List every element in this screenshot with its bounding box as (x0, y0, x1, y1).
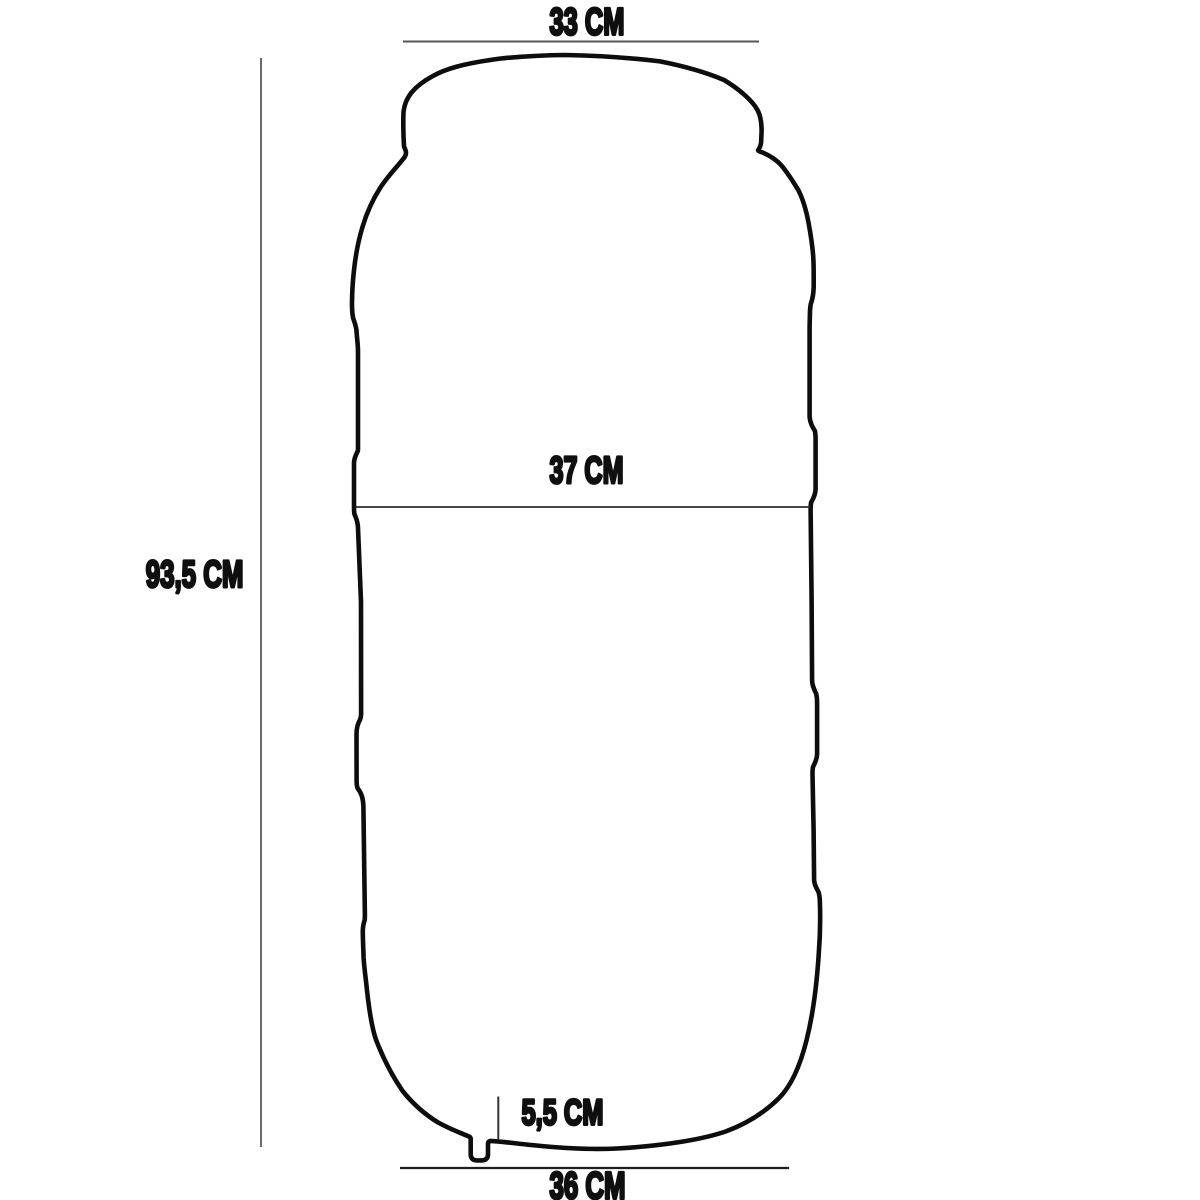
svg-text:5,5 CM: 5,5 CM (522, 1092, 604, 1133)
svg-text:33 CM: 33 CM (550, 2, 625, 44)
svg-text:36 CM: 36 CM (550, 1166, 626, 1200)
svg-text:37 CM: 37 CM (550, 450, 624, 492)
svg-text:93,5 CM: 93,5 CM (146, 554, 244, 596)
